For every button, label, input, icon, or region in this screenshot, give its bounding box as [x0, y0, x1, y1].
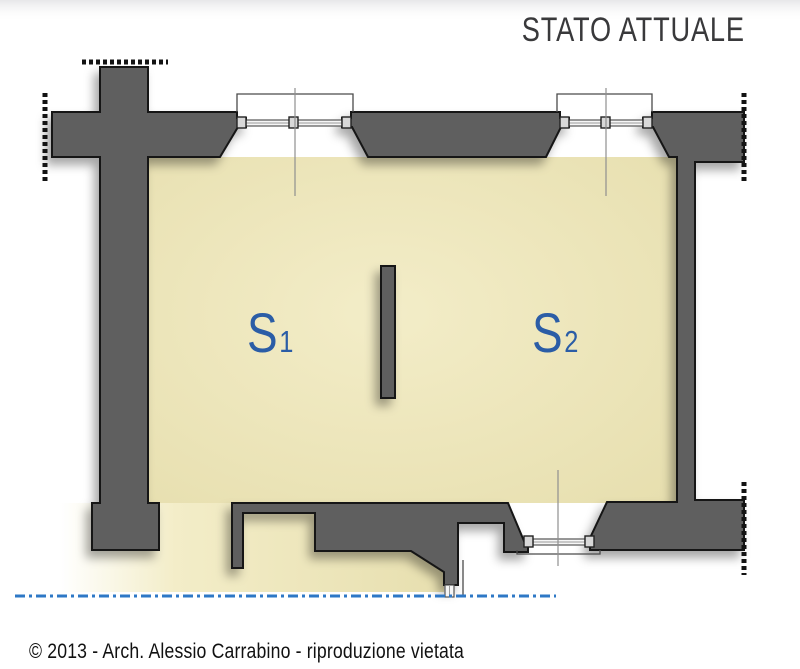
room-label-s1: S 1	[247, 311, 293, 355]
page-title: STATO ATTUALE	[522, 11, 745, 50]
door-jamb-cap	[524, 536, 533, 547]
window-1-jamb-cap	[237, 117, 246, 128]
floor-plan-page: STATO ATTUALE S 1 S 2 © 2013 - Arch. Ale…	[0, 0, 800, 669]
floor	[148, 157, 677, 503]
room-label-s2: S 2	[532, 311, 578, 355]
room-s2-index: 2	[564, 330, 578, 355]
room-s1-index: 1	[279, 330, 293, 355]
window-2-recess	[557, 94, 652, 112]
top-wall-pier	[342, 112, 569, 157]
window-2-jamb-cap	[643, 117, 652, 128]
window-2-jamb-cap	[560, 117, 569, 128]
door-jamb-cap	[585, 536, 594, 547]
partition-wall	[381, 266, 395, 398]
copyright-note: © 2013 - Arch. Alessio Carrabino - ripro…	[29, 640, 464, 664]
room-s1-letter: S	[247, 311, 278, 355]
window-1-mullion-cap	[289, 117, 298, 128]
floor-plan-drawing	[0, 0, 800, 669]
room-s2-letter: S	[532, 311, 563, 355]
window-1-jamb-cap	[342, 117, 351, 128]
